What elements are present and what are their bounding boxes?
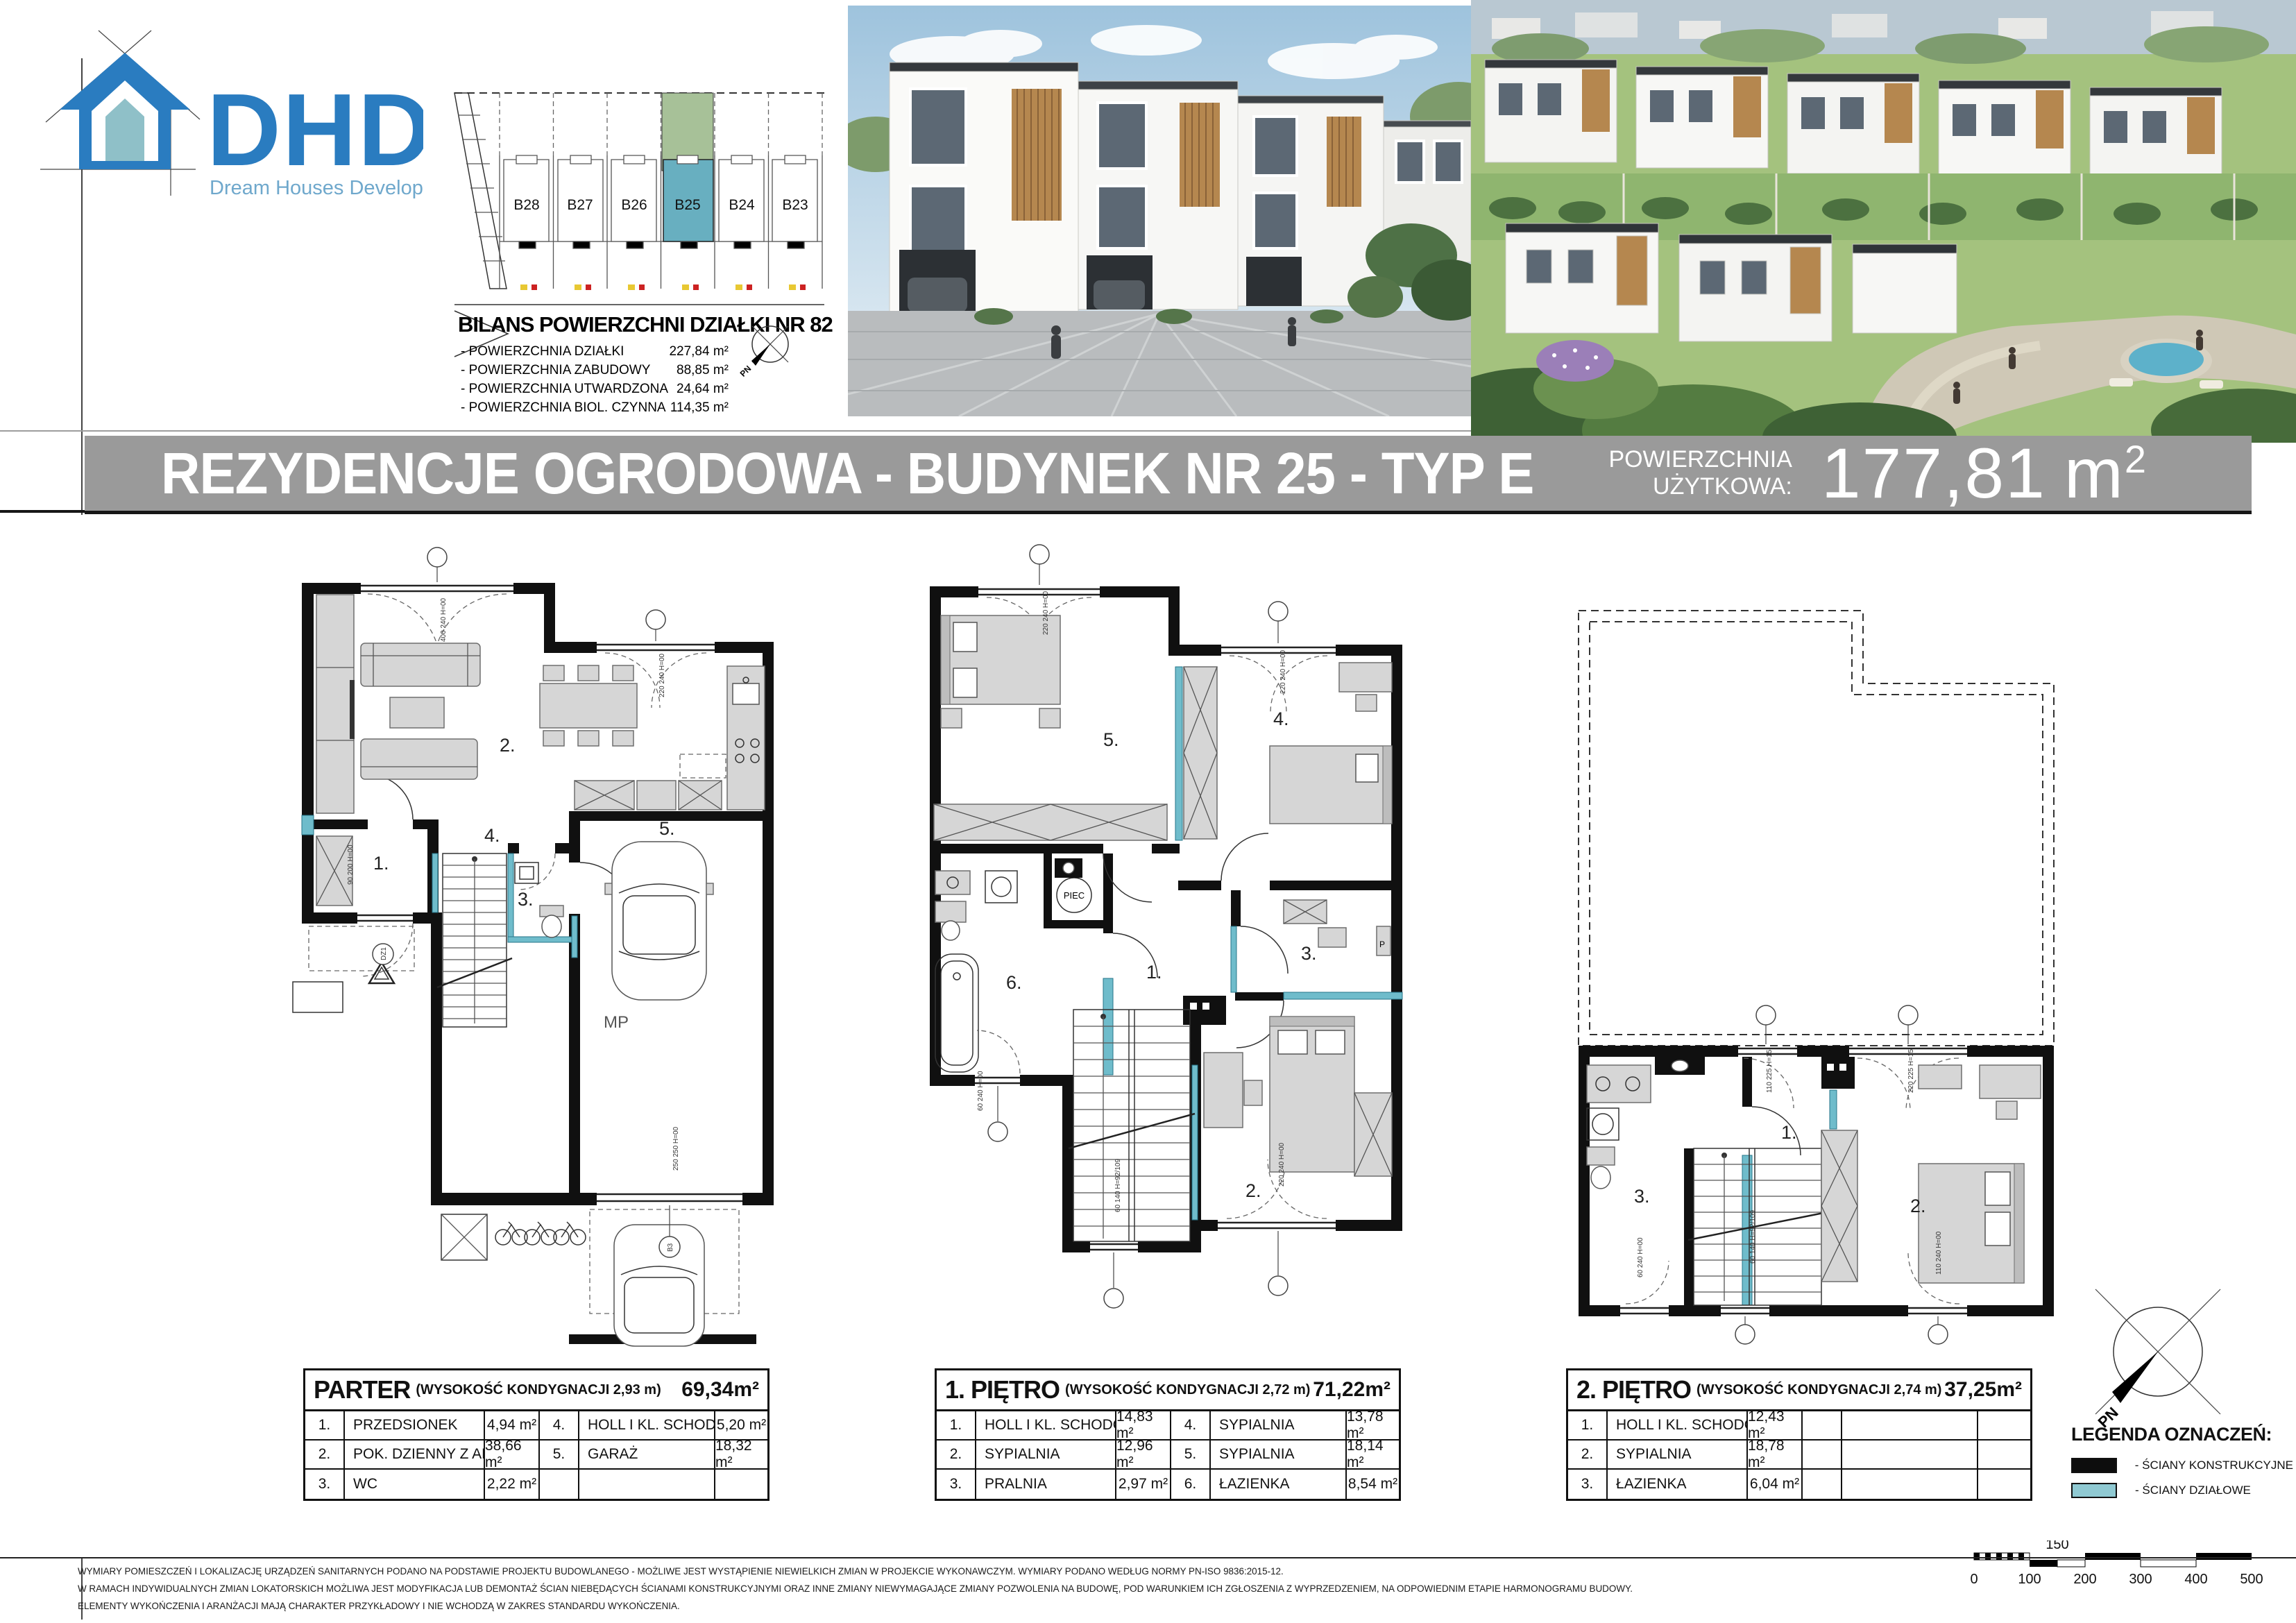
room-area-cell: 2,22 m² bbox=[485, 1470, 540, 1499]
room-number-cell: 4. bbox=[540, 1411, 579, 1441]
scale-tick-label: 0 bbox=[1970, 1572, 1978, 1587]
table-rows: 1. HOLL I KL. SCHODOWA 12,43 m² 2. SYPIA… bbox=[1568, 1411, 2030, 1499]
window-note: 220 240 H=00 bbox=[1042, 590, 1050, 635]
room-number: 2. bbox=[500, 735, 516, 756]
road-hatch bbox=[454, 93, 507, 289]
room-name-cell: SYPIALNIA bbox=[1211, 1441, 1347, 1470]
driveway bbox=[590, 1209, 739, 1346]
floor-total-area: 71,22m² bbox=[1313, 1378, 1391, 1402]
room-name-cell: SYPIALNIA bbox=[1211, 1411, 1347, 1441]
room-number: 6. bbox=[1006, 972, 1022, 993]
titlebar-bottom-rule-left bbox=[0, 510, 85, 513]
room-name-cell bbox=[1842, 1470, 1978, 1499]
plot-label: B24 bbox=[729, 197, 755, 213]
bilans-value: 227,84 m² bbox=[669, 344, 729, 359]
legend-item-label: - ŚCIANY KONSTRUKCYJNE bbox=[2135, 1459, 2293, 1472]
bilans-label: - POWIERZCHNIA BIOL. CZYNNA bbox=[461, 400, 666, 415]
structural-wall-swatch bbox=[2071, 1458, 2117, 1473]
house-icon bbox=[60, 53, 190, 169]
page-title: REZYDENCJE OGRODOWA - BUDYNEK NR 25 - TY… bbox=[161, 440, 1533, 507]
disclaimer-line: ELEMENTY WYKOŃCZENIA I ARANŻACJI MAJĄ CH… bbox=[78, 1597, 1783, 1615]
bilans-value: 114,35 m² bbox=[670, 400, 729, 415]
room-area-cell: 13,78 m² bbox=[1347, 1411, 1399, 1441]
room-number: 5. bbox=[659, 818, 675, 839]
usable-area-label-line1: POWIERZCHNIA bbox=[1608, 446, 1792, 473]
legend-item-label: - ŚCIANY DZIAŁOWE bbox=[2135, 1484, 2251, 1497]
room-number-cell: 1. bbox=[1568, 1411, 1608, 1441]
usable-area-value: 177,81m2 bbox=[1821, 433, 2148, 514]
floor-name: PARTER bbox=[314, 1375, 410, 1404]
room-area-cell: 5,20 m² bbox=[715, 1411, 767, 1441]
parking-label: MP bbox=[604, 1013, 629, 1032]
window-note: 220 240 H=00 bbox=[1278, 1142, 1286, 1187]
room-area-cell: 12,43 m² bbox=[1748, 1411, 1803, 1441]
window-note: 220 240 H=00 bbox=[658, 653, 666, 697]
bedroom4-furniture bbox=[1270, 663, 1392, 824]
room-number-cell bbox=[1803, 1470, 1842, 1499]
usable-area-label-line2: UŻYTKOWA: bbox=[1608, 473, 1792, 500]
floor-height-note: (WYSOKOŚĆ KONDYGNACJI 2,93 m) bbox=[416, 1382, 661, 1398]
room-table-pietro2: 2. PIĘTRO (WYSOKOŚĆ KONDYGNACJI 2,74 m) … bbox=[1566, 1368, 2032, 1501]
floor-plan-parter: DZ1 B3 400 240 H=00 220 240 H=00 90 200 … bbox=[264, 538, 805, 1360]
partition-wall-swatch bbox=[2071, 1483, 2117, 1498]
floor-total-area: 69,34m² bbox=[681, 1378, 759, 1402]
room-number-cell bbox=[1803, 1411, 1842, 1441]
scale-tick-label: 200 bbox=[2073, 1572, 2096, 1587]
room-name-cell bbox=[579, 1470, 715, 1499]
room-area-cell: 14,83 m² bbox=[1116, 1411, 1171, 1441]
window-notes: 110 225 H=15 220 225 H=15 60 240 H=00 60… bbox=[1637, 1048, 1943, 1277]
room-area-cell: 12,96 m² bbox=[1116, 1441, 1171, 1470]
stairs bbox=[1069, 1010, 1195, 1241]
room-name-cell: WC bbox=[345, 1470, 485, 1499]
stairs bbox=[437, 853, 512, 1027]
wardrobe-tall bbox=[1184, 667, 1217, 839]
usable-area-block: POWIERZCHNIA UŻYTKOWA: 177,81m2 bbox=[1608, 436, 2148, 511]
scale-tick-labels: 150 0 100 200 300 400 500 bbox=[1970, 1540, 2263, 1587]
room-area-cell: 8,54 m² bbox=[1347, 1470, 1399, 1499]
floor-height-note: (WYSOKOŚĆ KONDYGNACJI 2,74 m) bbox=[1697, 1382, 1941, 1398]
table-header: 2. PIĘTRO (WYSOKOŚĆ KONDYGNACJI 2,74 m) … bbox=[1568, 1370, 2030, 1411]
room-table-pietro1: 1. PIĘTRO (WYSOKOŚĆ KONDYGNACJI 2,72 m) … bbox=[935, 1368, 1401, 1501]
footer-rule bbox=[0, 1557, 2296, 1558]
legend: LEGENDA OZNACZEŃ: - ŚCIANY KONSTRUKCYJNE… bbox=[2071, 1424, 2293, 1508]
bilans-value: 24,64 m² bbox=[677, 382, 729, 396]
plot-label: B27 bbox=[567, 197, 593, 213]
bilans-title: BILANS POWIERZCHNI DZIAŁKI NR 823 bbox=[458, 312, 833, 337]
room-table-parter: PARTER (WYSOKOŚĆ KONDYGNACJI 2,93 m) 69,… bbox=[303, 1368, 769, 1501]
room-number: 2. bbox=[1910, 1196, 1926, 1216]
bilans-list: - POWIERZCHNIA DZIAŁKI 227,84 m² - POWIE… bbox=[461, 344, 729, 415]
room-area-cell bbox=[715, 1470, 767, 1499]
bedroom2-furniture bbox=[1204, 1017, 1392, 1176]
disclaimer-line: W RAMACH INDYWIDUALNYCH ZMIAN LOKATORSKI… bbox=[78, 1580, 1783, 1597]
site-plan: B28 B27 B26 B25 B24 B23 BILANS POWIERZCH… bbox=[444, 67, 833, 437]
table-header: PARTER (WYSOKOŚĆ KONDYGNACJI 2,93 m) 69,… bbox=[305, 1370, 767, 1411]
room-number-cell: 3. bbox=[1568, 1470, 1608, 1499]
table-rows: 1. PRZEDSIONEK 4,94 m² 4. HOLL I KL. SCH… bbox=[305, 1411, 767, 1499]
room-number-labels: 1. 2. 3. bbox=[1634, 1122, 1926, 1216]
windows-and-doors bbox=[1620, 1048, 1967, 1314]
window-note: 60 240 H=00 bbox=[977, 1071, 985, 1111]
table-header: 1. PIĘTRO (WYSOKOŚĆ KONDYGNACJI 2,72 m) … bbox=[937, 1370, 1399, 1411]
usable-area-label: POWIERZCHNIA UŻYTKOWA: bbox=[1608, 446, 1792, 500]
room-number-cell: 2. bbox=[305, 1441, 345, 1470]
aerial-render-photo bbox=[1471, 0, 2296, 443]
room-number-cell: 5. bbox=[540, 1441, 579, 1470]
room-name-cell: ŁAZIENKA bbox=[1211, 1470, 1347, 1499]
street-render-photo bbox=[848, 6, 1471, 416]
p-box-label: P bbox=[1379, 940, 1385, 949]
logo-abbr: DHD bbox=[207, 73, 423, 187]
scale-mid-label: 150 bbox=[2046, 1540, 2068, 1552]
compass-rose-icon: PN bbox=[2082, 1288, 2234, 1441]
pavement bbox=[848, 311, 1471, 416]
room-name-cell bbox=[1842, 1411, 1978, 1441]
plot-label: B28 bbox=[513, 197, 539, 213]
room-number: 3. bbox=[1301, 943, 1317, 964]
room-area-cell bbox=[1978, 1470, 2030, 1499]
plot-label-highlighted: B25 bbox=[674, 197, 700, 213]
living-room-furniture bbox=[316, 595, 480, 813]
room-name-cell: SYPIALNIA bbox=[976, 1441, 1116, 1470]
logo-tagline: Dream Houses Development bbox=[210, 177, 423, 199]
bedroom5-furniture bbox=[934, 615, 1167, 840]
room-number-cell: 3. bbox=[305, 1470, 345, 1499]
room-area-cell bbox=[1978, 1411, 2030, 1441]
boiler-label: PIEC bbox=[1064, 890, 1085, 901]
room-name-cell: GARAŻ bbox=[579, 1441, 715, 1470]
dining-furniture bbox=[540, 665, 637, 746]
room-area-cell: 6,04 m² bbox=[1748, 1470, 1803, 1499]
window-note: 90 200 H=00 bbox=[347, 844, 355, 885]
floor-name: 2. PIĘTRO bbox=[1576, 1375, 1691, 1404]
room-number: 4. bbox=[1273, 708, 1289, 729]
disclaimer: WYMIARY POMIESZCZEŃ I LOKALIZACJĘ URZĄDZ… bbox=[78, 1563, 1854, 1615]
room-name-cell: HOLL I KL. SCHODOWA bbox=[976, 1411, 1116, 1441]
plot-label: B23 bbox=[782, 197, 808, 213]
room-name-cell: SYPIALNIA bbox=[1608, 1441, 1748, 1470]
bathroom6-fixtures bbox=[935, 871, 1017, 1072]
title-bar: REZYDENCJE OGRODOWA - BUDYNEK NR 25 - TY… bbox=[85, 436, 2252, 514]
room-number: 1. bbox=[373, 853, 389, 874]
bilans-label: - POWIERZCHNIA ZABUDOWY bbox=[461, 363, 651, 377]
room-number-cell: 1. bbox=[305, 1411, 345, 1441]
room-name-cell: POK. DZIENNY Z AN. KUCH. bbox=[345, 1441, 485, 1470]
bilans-label: - POWIERZCHNIA DZIAŁKI bbox=[461, 344, 624, 359]
room-number-cell: 2. bbox=[1568, 1441, 1608, 1470]
room-name-cell: ŁAZIENKA bbox=[1608, 1470, 1748, 1499]
room-name-cell: HOLL I KL. SCHODOWA bbox=[1608, 1411, 1748, 1441]
room-area-cell: 18,32 m² bbox=[715, 1441, 767, 1470]
room-number: 3. bbox=[1634, 1186, 1650, 1207]
room-number-cell: 4. bbox=[1171, 1411, 1211, 1441]
room-area-cell: 2,97 m² bbox=[1116, 1470, 1171, 1499]
usable-area-number: 177,81 bbox=[1821, 434, 2046, 513]
disclaimer-line: WYMIARY POMIESZCZEŃ I LOKALIZACJĘ URZĄDZ… bbox=[78, 1563, 1783, 1580]
room-name-cell bbox=[1842, 1441, 1978, 1470]
window-note: 60 140 H=92/109 bbox=[1749, 1210, 1757, 1264]
scale-bar: 150 0 100 200 300 400 500 bbox=[1960, 1540, 2265, 1597]
floor-name: 1. PIĘTRO bbox=[945, 1375, 1060, 1404]
usable-area-exponent: 2 bbox=[2125, 437, 2148, 481]
highlighted-plot bbox=[662, 93, 713, 241]
room-number-cell bbox=[540, 1470, 579, 1499]
room-number: 1. bbox=[1781, 1122, 1797, 1143]
room-number-cell: 3. bbox=[937, 1470, 976, 1499]
room-name-cell: HOLL I KL. SCHODOWA bbox=[579, 1411, 715, 1441]
plot-label: B26 bbox=[621, 197, 647, 213]
room-number: 3. bbox=[518, 889, 534, 910]
room-number: 1. bbox=[1146, 962, 1162, 983]
room-number-cell bbox=[1803, 1441, 1842, 1470]
table-rows: 1. HOLL I KL. SCHODOWA 14,83 m² 4. SYPIA… bbox=[937, 1411, 1399, 1499]
window-note: 400 240 H=00 bbox=[440, 597, 448, 642]
room-area-cell: 18,78 m² bbox=[1748, 1441, 1803, 1470]
room-number-cell: 6. bbox=[1171, 1470, 1211, 1499]
axis-label: DZ1 bbox=[380, 947, 388, 960]
legend-item-partition: - ŚCIANY DZIAŁOWE bbox=[2071, 1483, 2293, 1498]
room-name-cell: PRZEDSIONEK bbox=[345, 1411, 485, 1441]
boiler-room: PIEC bbox=[1055, 858, 1091, 912]
room3-furniture: P bbox=[1284, 900, 1391, 955]
room-number: 4. bbox=[484, 825, 500, 846]
window-note: 250 250 H=00 bbox=[672, 1126, 680, 1171]
window-note: 110 240 H=00 bbox=[1935, 1231, 1943, 1275]
floor-total-area: 37,25m² bbox=[1944, 1378, 2022, 1402]
window-note: 110 225 H=15 bbox=[1766, 1049, 1774, 1093]
scale-tick-label: 500 bbox=[2240, 1572, 2263, 1587]
bilans-label: - POWIERZCHNIA UTWARDZONA bbox=[461, 382, 668, 396]
legend-title: LEGENDA OZNACZEŃ: bbox=[2071, 1424, 2293, 1445]
wardrobe bbox=[1821, 1130, 1857, 1282]
bilans-value: 88,85 m² bbox=[677, 363, 729, 377]
dhd-logo: DHD Dream Houses Development bbox=[35, 21, 423, 205]
room-number-cell: 5. bbox=[1171, 1441, 1211, 1470]
roof-terrace-outline bbox=[1579, 611, 2054, 1046]
scale-tick-label: 300 bbox=[2129, 1572, 2152, 1587]
scale-tick-label: 400 bbox=[2184, 1572, 2207, 1587]
stairs bbox=[1688, 1148, 1827, 1305]
room-number: 5. bbox=[1103, 729, 1119, 750]
scale-bar-segments bbox=[1974, 1553, 2252, 1567]
axis-label: B3 bbox=[667, 1243, 674, 1252]
window-note: 220 240 H=00 bbox=[1279, 649, 1287, 694]
window-note: 220 225 H=15 bbox=[1907, 1048, 1915, 1093]
room-name-cell: PRALNIA bbox=[976, 1470, 1116, 1499]
room-number-cell: 1. bbox=[937, 1411, 976, 1441]
compass-small-label: PN bbox=[738, 364, 754, 379]
room-area-cell: 4,94 m² bbox=[485, 1411, 540, 1441]
room-area-cell: 18,14 m² bbox=[1347, 1441, 1399, 1470]
offer-sheet-page: DHD Dream Houses Development bbox=[0, 0, 2296, 1623]
window-note: 60 240 H=00 bbox=[1637, 1237, 1644, 1277]
floor-height-note: (WYSOKOŚĆ KONDYGNACJI 2,72 m) bbox=[1065, 1382, 1310, 1398]
floor-plan-pietro2: 110 225 H=15 220 225 H=15 60 240 H=00 60… bbox=[1530, 579, 2075, 1346]
scale-tick-label: 100 bbox=[2018, 1572, 2041, 1587]
floor-plan-pietro1: PIEC P bbox=[895, 538, 1422, 1332]
window-note: 60 140 H=92/109 bbox=[1114, 1159, 1122, 1212]
room-number-cell: 2. bbox=[937, 1441, 976, 1470]
room-area-cell bbox=[1978, 1441, 2030, 1470]
outdoor-storage bbox=[441, 1214, 586, 1260]
garage-car-icon bbox=[605, 842, 713, 1000]
room-number: 2. bbox=[1245, 1180, 1261, 1201]
legend-item-structural: - ŚCIANY KONSTRUKCYJNE bbox=[2071, 1458, 2293, 1473]
usable-area-unit: m bbox=[2064, 434, 2125, 513]
room-area-cell: 38,66 m² bbox=[485, 1441, 540, 1470]
